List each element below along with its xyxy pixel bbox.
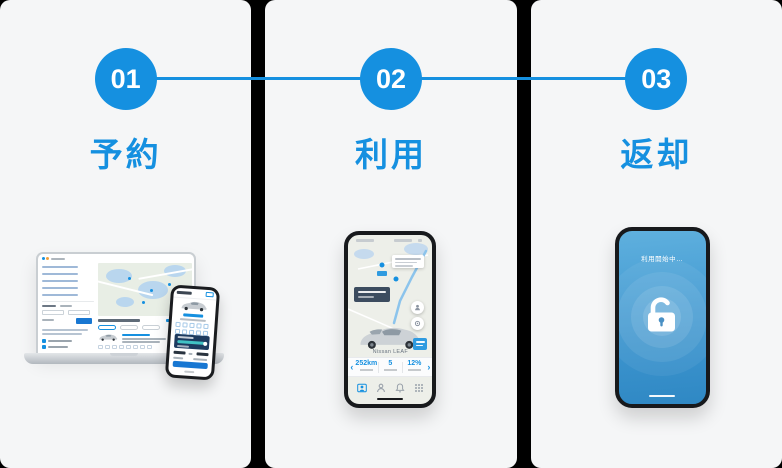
sk-placeholder <box>173 351 185 355</box>
sk-placeholder <box>98 319 140 322</box>
time-slider-panel <box>174 334 210 350</box>
sk-placeholder <box>126 345 131 349</box>
circle <box>360 386 363 389</box>
step-card-use: 02 利用 <box>265 0 516 468</box>
sk-placeholder <box>177 345 189 347</box>
vdiv-placeholder <box>378 362 379 373</box>
circle <box>399 391 401 393</box>
blob-placeholder <box>116 297 134 307</box>
sk-placeholder <box>119 345 124 349</box>
circle <box>417 323 418 324</box>
sk-placeholder <box>122 341 160 343</box>
map-pin-icon <box>142 301 145 304</box>
sk-placeholder <box>395 265 413 267</box>
time-slider-bar <box>177 340 204 345</box>
g <box>415 384 423 392</box>
station-name-tooltip <box>354 287 390 302</box>
sk-placeholder <box>196 352 208 356</box>
sk-placeholder <box>98 325 116 330</box>
booking-car-image <box>179 299 208 313</box>
vdiv-placeholder <box>402 362 403 373</box>
circle <box>415 384 417 386</box>
sk-placeholder <box>112 345 117 349</box>
vehicle-stats-bar: ‹ › 252km 5 12% <box>348 357 432 377</box>
sk-placeholder <box>42 294 78 296</box>
step-1-number: 01 <box>111 64 141 95</box>
path <box>359 390 364 392</box>
stat-range: 252km <box>355 360 377 371</box>
bell-icon <box>395 383 405 393</box>
sk-placeholder <box>133 345 138 349</box>
sk-placeholder <box>416 341 425 343</box>
stat-val-placeholder: 252km <box>355 360 377 367</box>
stat-val-placeholder: 12% <box>403 360 425 367</box>
sk-placeholder <box>177 291 192 295</box>
map-pin-icon <box>168 283 171 286</box>
sk-placeholder <box>173 357 183 359</box>
sk-placeholder <box>188 353 192 355</box>
sk-placeholder <box>42 305 56 307</box>
slider-handle-icon <box>203 341 207 345</box>
sk-placeholder <box>48 346 68 348</box>
circle <box>415 387 417 389</box>
icon-box-placeholder <box>175 322 180 327</box>
sk-placeholder <box>178 336 194 339</box>
sk-placeholder <box>416 345 423 347</box>
person-icon <box>414 304 421 311</box>
sk-placeholder <box>48 340 72 342</box>
sk-placeholder <box>42 319 54 321</box>
station-callout <box>392 255 424 268</box>
icon-box-placeholder <box>189 323 194 328</box>
step-3-label: 返却 <box>531 128 782 176</box>
sk-placeholder <box>122 338 166 340</box>
stat-battery: 12% <box>403 360 425 371</box>
circle <box>415 390 417 392</box>
sk-placeholder <box>42 266 78 268</box>
map-pin-icon <box>128 277 131 280</box>
circle <box>418 390 420 392</box>
use-app-phone: Nissan LEAF ‹ › 252km 5 12% <box>344 231 436 408</box>
unlock-phone: 利用開始中… <box>615 227 710 408</box>
booking-phone <box>165 284 220 380</box>
step-card-reserve: 01 予約 <box>0 0 251 468</box>
sk-placeholder <box>42 301 94 302</box>
sk-placeholder <box>98 345 103 349</box>
step-2-badge: 02 <box>360 48 422 110</box>
circle <box>379 384 383 388</box>
grid-menu-icon <box>414 383 424 393</box>
circle <box>102 339 104 341</box>
sk-placeholder <box>42 273 78 275</box>
circle <box>408 343 411 346</box>
unlock-status-text: 利用開始中… <box>619 253 706 263</box>
unlock-icon <box>641 297 683 342</box>
sk-placeholder <box>377 271 387 276</box>
booking-confirm-button <box>173 361 208 369</box>
sk-placeholder <box>42 280 78 282</box>
path <box>415 308 420 310</box>
step-3-number: 03 <box>641 64 671 95</box>
sk-placeholder <box>193 358 207 360</box>
sk-placeholder <box>183 313 203 317</box>
prev-chevron-icon: ‹ <box>350 362 353 372</box>
step-2-label: 利用 <box>265 128 516 176</box>
app-bottom-nav <box>348 381 432 395</box>
circle <box>416 305 419 308</box>
circle <box>380 263 385 268</box>
sk-placeholder <box>42 287 78 289</box>
sk-placeholder <box>105 345 110 349</box>
site-logo-icon <box>42 257 45 260</box>
sk-placeholder <box>140 345 145 349</box>
car-name: Nissan LEAF <box>348 349 432 355</box>
sk-placeholder <box>147 345 152 349</box>
sk-placeholder <box>142 325 160 330</box>
sk-placeholder <box>42 310 64 315</box>
sk-placeholder <box>42 339 46 343</box>
sk-placeholder <box>42 345 46 349</box>
sk-placeholder <box>395 258 421 260</box>
sk-placeholder <box>60 305 72 307</box>
sk-placeholder <box>68 310 90 315</box>
step-3-badge: 03 <box>625 48 687 110</box>
sk-placeholder <box>206 292 214 297</box>
icon-box-placeholder <box>203 324 208 329</box>
sk-placeholder <box>42 333 82 335</box>
sk-placeholder <box>46 257 49 260</box>
sk-placeholder <box>180 318 206 321</box>
circle <box>113 339 115 341</box>
circle <box>394 277 399 282</box>
sk-placeholder <box>122 334 150 336</box>
path <box>377 389 384 392</box>
stat-cap-placeholder <box>360 369 373 371</box>
stat-cap-placeholder <box>384 369 397 371</box>
path <box>396 384 403 390</box>
step-2-number: 02 <box>376 64 406 95</box>
stat-middle: 5 <box>379 360 401 371</box>
circle <box>421 387 423 389</box>
laptop-notch-placeholder <box>110 353 138 356</box>
sk-placeholder <box>358 296 374 298</box>
path <box>653 300 668 314</box>
sk-placeholder <box>51 258 65 260</box>
circle <box>418 384 420 386</box>
svg <box>641 297 683 337</box>
rect <box>660 321 662 327</box>
laptop-search-button <box>76 318 92 324</box>
blob-placeholder <box>138 281 168 299</box>
blob-placeholder <box>106 269 132 283</box>
circle <box>370 343 373 346</box>
step-1-badge: 01 <box>95 48 157 110</box>
process-flow: 01 予約 <box>0 0 782 468</box>
circle <box>421 390 423 392</box>
step-1-label: 予約 <box>0 128 251 176</box>
sk-placeholder <box>184 371 194 373</box>
reserve-illustration <box>22 252 230 380</box>
sk-placeholder <box>358 291 386 293</box>
stat-val-placeholder: 5 <box>379 360 401 367</box>
sk-placeholder <box>120 325 138 330</box>
step-card-return: 03 返却 利用開始中… <box>531 0 782 468</box>
stat-cap-placeholder <box>408 369 421 371</box>
circle <box>418 387 420 389</box>
icon-box-placeholder <box>182 322 187 327</box>
map-pin-icon <box>150 289 153 292</box>
home-indicator <box>377 398 403 401</box>
sk-placeholder <box>42 329 88 331</box>
sk-placeholder <box>395 262 417 264</box>
icon-box-placeholder <box>196 323 201 328</box>
circle <box>421 384 423 386</box>
listing-car-image <box>98 333 118 342</box>
profile-badge-icon <box>357 383 367 393</box>
next-chevron-icon: › <box>427 362 430 372</box>
home-indicator <box>649 395 675 398</box>
person-icon <box>376 383 386 393</box>
